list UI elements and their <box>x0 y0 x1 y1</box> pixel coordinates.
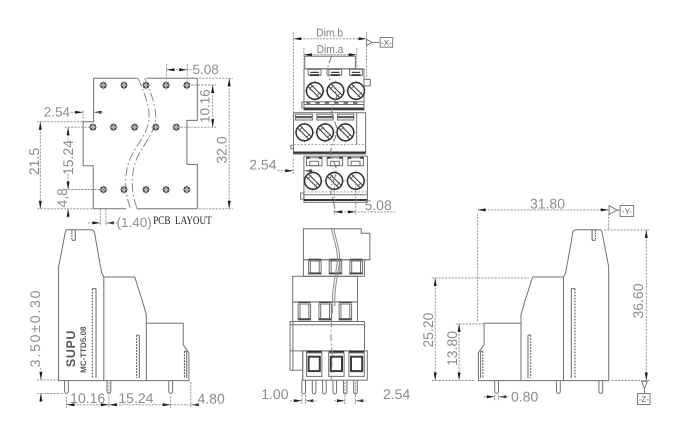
svg-text:2.54: 2.54 <box>383 386 410 402</box>
svg-text:(1.40): (1.40) <box>117 215 152 230</box>
svg-text:25.20: 25.20 <box>420 312 436 347</box>
svg-text:PCB LAYOUT: PCB LAYOUT <box>153 215 212 227</box>
svg-text:15.24: 15.24 <box>118 390 153 406</box>
svg-text:Dim.a: Dim.a <box>317 44 344 56</box>
svg-text:0.80: 0.80 <box>511 389 538 405</box>
svg-text:15.24: 15.24 <box>60 140 76 175</box>
svg-text:36.60: 36.60 <box>630 283 646 318</box>
svg-text:2.54: 2.54 <box>249 156 276 172</box>
svg-text:31.80: 31.80 <box>530 195 565 211</box>
svg-text:SUPU: SUPU <box>64 330 78 367</box>
svg-text:10.16: 10.16 <box>70 390 105 406</box>
svg-text:4.80: 4.80 <box>198 390 225 406</box>
svg-text:-X-: -X- <box>381 38 392 47</box>
svg-text:21.5: 21.5 <box>26 148 42 175</box>
svg-text:5.08: 5.08 <box>193 62 219 77</box>
svg-text:-Z-: -Z- <box>639 395 650 404</box>
svg-text:-Y-: -Y- <box>622 207 632 216</box>
svg-text:13.80: 13.80 <box>444 331 460 366</box>
svg-text:Dim.b: Dim.b <box>316 28 343 40</box>
svg-text:5.08: 5.08 <box>365 197 392 213</box>
svg-text:2.54: 2.54 <box>44 104 71 119</box>
svg-text:1.00: 1.00 <box>261 386 288 402</box>
svg-text:MC-TTD5.08: MC-TTD5.08 <box>79 326 88 373</box>
svg-text:10.16: 10.16 <box>198 89 213 123</box>
svg-text:4,8: 4,8 <box>54 188 70 208</box>
svg-text:32.0: 32.0 <box>213 136 229 163</box>
svg-text:3.50±0.30: 3.50±0.30 <box>27 289 43 367</box>
